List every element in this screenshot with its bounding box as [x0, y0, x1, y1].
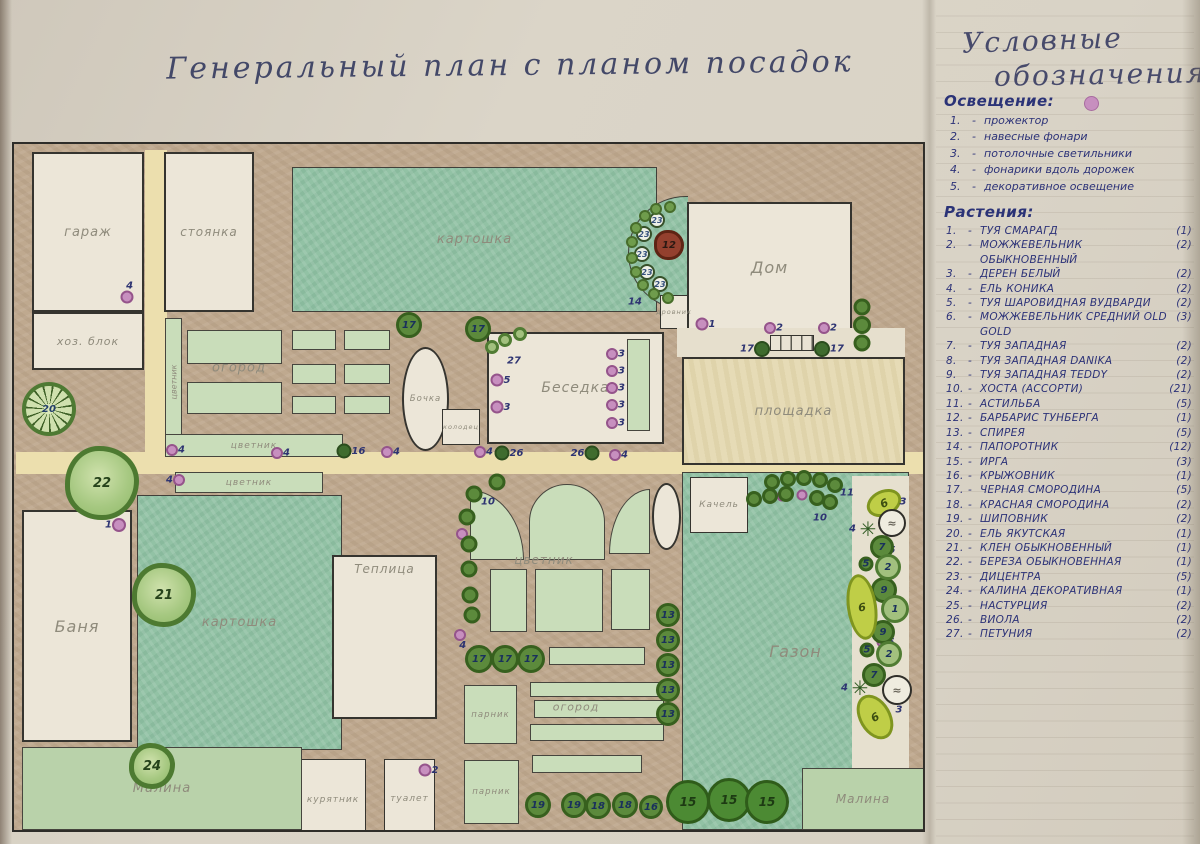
shrub	[778, 486, 794, 502]
fern-dot	[626, 236, 638, 248]
swing-label: Качель	[691, 478, 747, 532]
fern-dot	[662, 292, 674, 304]
plants-heading: Растения:	[944, 203, 1034, 221]
legend-row: 7.-ТУЯ ЗАПАДНАЯ(2)	[946, 339, 1192, 353]
fern-dot	[630, 266, 642, 278]
flowerbed-strip-2-label: цветник	[176, 473, 322, 492]
potato-field-top-label: картошка	[293, 168, 656, 311]
legend-num: 5.	[946, 296, 968, 310]
light-dot: 3	[606, 348, 618, 360]
legend-num: 17.	[946, 483, 968, 497]
garden-bed	[292, 396, 336, 414]
legend-panel: Условные обозначения Освещение: 1.-проже…	[936, 0, 1194, 844]
barberry-bush: 12	[654, 230, 684, 260]
light-dot: 2	[818, 322, 830, 334]
legend-name: ЕЛЬ ЯКУТСКАЯ	[980, 527, 1172, 541]
legend-name: ХОСТА (АССОРТИ)	[980, 382, 1165, 396]
flower-garden-bed	[490, 569, 527, 632]
legend-dash: -	[968, 469, 980, 483]
barrel-label: Бочка	[404, 349, 447, 449]
well-label: колодец	[443, 410, 479, 444]
garden-bed	[534, 700, 664, 718]
legend-name: навесные фонари	[984, 129, 1190, 145]
legend-dash: -	[968, 498, 980, 512]
hotbed-label: парник	[465, 686, 516, 743]
light-dot: 1	[696, 318, 709, 331]
legend-num: 4.	[946, 282, 968, 296]
legend-name: КЛЕН ОБЫКНОВЕННЫЙ	[980, 541, 1172, 555]
legend-row: 4.-фонарики вдоль дорожек	[950, 162, 1190, 178]
marker-number: 23	[654, 280, 665, 289]
legend-dash: -	[968, 613, 980, 627]
marker-number: 5	[863, 559, 870, 570]
shrub-dot: 26	[495, 446, 510, 461]
marker-number: 1	[105, 520, 112, 531]
shrub: 13	[656, 603, 680, 627]
shrub	[854, 299, 871, 316]
marker-number: 4	[283, 448, 290, 459]
marker-number: 18	[618, 800, 632, 811]
legend-name: ТУЯ ЗАПАДНАЯ DANIKA	[980, 354, 1172, 368]
legend-num: 22.	[946, 555, 968, 569]
garden-bed	[530, 682, 664, 697]
shrub: 2	[876, 641, 902, 667]
marker-number: 17	[471, 324, 485, 335]
legend-num: 3.	[950, 146, 972, 162]
legend-num: 14.	[946, 440, 968, 454]
legend-row: 27.-ПЕТУНИЯ(2)	[946, 627, 1192, 641]
shrub: 18	[612, 792, 638, 818]
greenhouse: Теплица	[332, 555, 437, 719]
spruce-conica-icon: ✳4	[850, 678, 870, 698]
legend-row: 24.-КАЛИНА ДЕКОРАТИВНАЯ(1)	[946, 584, 1192, 598]
legend-num: 1.	[946, 224, 968, 238]
legend-row: 18.-КРАСНАЯ СМОРОДИНА(2)	[946, 498, 1192, 512]
legend-row: 3.-потолочные светильники	[950, 146, 1190, 162]
legend-row: 25.-НАСТУРЦИЯ(2)	[946, 599, 1192, 613]
marker-number: 13	[661, 610, 675, 621]
legend-dash: -	[968, 627, 980, 641]
legend-name: ЕЛЬ КОНИКА	[980, 282, 1172, 296]
spruce-top-view: 20	[22, 382, 76, 436]
marker-number: 7	[879, 542, 886, 553]
legend-row: 20.-ЕЛЬ ЯКУТСКАЯ(1)	[946, 527, 1192, 541]
shrub	[466, 486, 483, 503]
shrub	[822, 494, 838, 510]
flower-garden-bed	[611, 569, 650, 630]
legend-row: 13.-СПИРЕЯ(5)	[946, 426, 1192, 440]
marker-number: 23	[636, 250, 647, 259]
legend-row: 12.-БАРБАРИС ТУНБЕРГА(1)	[946, 411, 1192, 425]
light-dot: 3	[606, 399, 618, 411]
bathhouse-label: Баня	[24, 512, 130, 740]
light-dot: 4	[474, 446, 486, 458]
legend-name: декоративное освещение	[984, 179, 1190, 195]
shrub: 19	[561, 792, 587, 818]
legend-name: МОЖЖЕВЕЛЬНИК ОБЫКНОВЕННЫЙ	[980, 238, 1172, 267]
shrub: 16	[639, 795, 663, 819]
garden-bed	[532, 755, 642, 773]
legend-name: ДИЦЕНТРА	[980, 570, 1172, 584]
fern-dot	[650, 203, 662, 215]
legend-dash: -	[968, 483, 980, 497]
legend-name: ДЕРЕН БЕЛЫЙ	[980, 267, 1172, 281]
light-dot: 4	[121, 291, 134, 304]
marker-number: 22	[93, 476, 111, 491]
shrub	[461, 536, 478, 553]
legend-num: 25.	[946, 599, 968, 613]
legend-row: 21.-КЛЕН ОБЫКНОВЕННЫЙ(1)	[946, 541, 1192, 555]
flower-garden-bed	[549, 647, 645, 665]
legend-num: 2.	[950, 129, 972, 145]
marker-number: 15	[759, 795, 776, 809]
flowerbed-strip-2: цветник	[175, 472, 323, 493]
shrub: 2	[875, 554, 901, 580]
marker-number: 7	[871, 670, 878, 681]
legend-num: 11.	[946, 397, 968, 411]
legend-dash: -	[968, 599, 980, 613]
marker-number: 17	[498, 654, 512, 665]
legend-name: ТУЯ ЗАПАДНАЯ TEDDY	[980, 368, 1172, 382]
house-label: Дом	[689, 204, 850, 330]
legend-dash: -	[968, 397, 980, 411]
marker-number: 2	[432, 765, 439, 776]
legend-name: ИРГА	[980, 455, 1172, 469]
light-dot: 4	[271, 447, 283, 459]
spruce-conica-icon: ✳4	[858, 519, 878, 539]
garden-bed	[187, 382, 282, 414]
legend-row: 26.-ВИОЛА(2)	[946, 613, 1192, 627]
legend-num: 12.	[946, 411, 968, 425]
greenhouse-label: Теплица	[334, 557, 435, 717]
light-dot: 1	[112, 518, 126, 532]
legend-dash: -	[968, 584, 980, 598]
legend-num: 7.	[946, 339, 968, 353]
utility-block-label: хоз. блок	[34, 314, 142, 368]
raspberry-right: Малина	[802, 768, 924, 830]
legend-dash: -	[968, 368, 980, 382]
marker-number: 18	[591, 801, 605, 812]
lighting-pink-dot-icon	[1084, 96, 1099, 111]
legend-row: 1.-прожектор	[950, 113, 1190, 129]
legend-row: 16.-КРЫЖОВНИК(1)	[946, 469, 1192, 483]
light-dot: 3	[606, 365, 618, 377]
marker-number: 5	[864, 645, 871, 656]
shrub	[498, 333, 512, 347]
gazebo-green-strip	[627, 339, 650, 431]
legend-dash: -	[968, 411, 980, 425]
shrub: 17	[396, 312, 422, 338]
marker-number: 2	[886, 649, 893, 660]
marker-number: 2	[885, 562, 892, 573]
legend-row: 15.-ИРГА(3)	[946, 455, 1192, 469]
marker-number: 19	[531, 800, 545, 811]
legend-num: 18.	[946, 498, 968, 512]
legend-name: БАРБАРИС ТУНБЕРГА	[980, 411, 1172, 425]
utility-block: хоз. блок	[32, 312, 144, 370]
shrub	[513, 327, 527, 341]
marker-number: 3	[618, 349, 625, 360]
marker-number: 17	[830, 344, 844, 355]
legend-num: 27.	[946, 627, 968, 641]
shrub: 13	[656, 628, 680, 652]
dogwood-shrub: ≈	[882, 675, 912, 705]
legend-dash: -	[968, 282, 980, 296]
lighting-list: 1.-прожектор2.-навесные фонари3.-потолоч…	[950, 113, 1190, 195]
legend-row: 11.-АСТИЛЬБА(5)	[946, 397, 1192, 411]
shrub-dot: 16	[337, 444, 352, 459]
garden-bed	[344, 330, 390, 350]
legend-dash: -	[968, 296, 980, 310]
legend-num: 19.	[946, 512, 968, 526]
legend-num: 23.	[946, 570, 968, 584]
marker-number: 6	[857, 600, 866, 614]
legend-row: 5.-ТУЯ ШАРОВИДНАЯ ВУДВАРДИ(2)	[946, 296, 1192, 310]
shrub-dot: 17	[814, 341, 830, 357]
legend-dash: -	[972, 179, 984, 195]
legend-dash: -	[968, 570, 980, 584]
legend-name: ШИПОВНИК	[980, 512, 1172, 526]
legend-name: АСТИЛЬБА	[980, 397, 1172, 411]
shrub	[464, 607, 481, 624]
hotbed-label: парник	[465, 761, 518, 823]
legend-num: 9.	[946, 368, 968, 382]
light-dot: 4	[609, 449, 621, 461]
garden-bed	[292, 330, 336, 350]
marker-number: 13	[661, 709, 675, 720]
marker-number: 13	[661, 685, 675, 696]
legend-num: 8.	[946, 354, 968, 368]
marker-number: 16	[352, 446, 366, 457]
plan: гаражхоз. блокстоянкакартошкаДомдровникп…	[12, 142, 925, 832]
legend-num: 15.	[946, 455, 968, 469]
legend-dash: -	[968, 455, 980, 469]
house: Дом	[687, 202, 852, 332]
legend-dash: -	[968, 354, 980, 368]
legend-dash: -	[972, 113, 984, 129]
light-dot: 2	[419, 764, 432, 777]
legend-row: 5.-декоративное освещение	[950, 179, 1190, 195]
marker-number: 9	[881, 585, 888, 596]
oval-bed	[652, 483, 681, 550]
marker-number: 4	[166, 475, 173, 486]
shrub	[459, 509, 476, 526]
marker-number: 15	[721, 793, 738, 807]
legend-dash: -	[968, 555, 980, 569]
fern-dot	[639, 210, 651, 222]
irga-shrub: 15	[666, 780, 710, 824]
legend-name: ВИОЛА	[980, 613, 1172, 627]
light-dot: 4	[454, 629, 466, 641]
marker-number: 17	[472, 654, 486, 665]
legend-num: 20.	[946, 527, 968, 541]
marker-number: 4	[126, 281, 133, 292]
shrub: 13	[656, 653, 680, 677]
marker-number: 5	[504, 375, 511, 386]
shrub	[746, 491, 762, 507]
marker-number: 12	[662, 240, 676, 251]
light-dot	[797, 490, 808, 501]
raspberry-right-label: Малина	[803, 769, 923, 829]
legend-name: МОЖЖЕВЕЛЬНИК СРЕДНИЙ OLD GOLD	[980, 310, 1172, 339]
hotbed: парник	[464, 760, 519, 824]
shrub-dot: 17	[754, 341, 770, 357]
light-dot: 4	[173, 474, 185, 486]
marker-number: 3	[504, 402, 511, 413]
garden-bed	[530, 724, 664, 741]
legend-name: ТУЯ ШАРОВИДНАЯ ВУДВАРДИ	[980, 296, 1172, 310]
legend-num: 21.	[946, 541, 968, 555]
legend-num: 24.	[946, 584, 968, 598]
shrub: 13	[656, 702, 680, 726]
marker-number: 1	[709, 319, 716, 330]
shrub: 17	[517, 645, 545, 673]
parking-label: стоянка	[166, 154, 252, 310]
marker-number: 6	[878, 495, 890, 510]
marker-number: 4	[841, 683, 848, 694]
legend-num: 16.	[946, 469, 968, 483]
potato-field-top: картошка	[292, 167, 657, 312]
legend-dash: -	[968, 512, 980, 526]
marker-number: 17	[740, 344, 754, 355]
legend-name: прожектор	[984, 113, 1190, 129]
legend-name: КРЫЖОВНИК	[980, 469, 1172, 483]
legend-row: 10.-ХОСТА (АССОРТИ)(21)	[946, 382, 1192, 396]
marker-number: 13	[661, 660, 675, 671]
legend-name: ПАПОРОТНИК	[980, 440, 1165, 454]
shrub	[461, 561, 478, 578]
marker-number: 9	[880, 627, 887, 638]
legend-row: 3.-ДЕРЕН БЕЛЫЙ(2)	[946, 267, 1192, 281]
light-dot: 4	[166, 444, 178, 456]
light-dot: 3	[606, 382, 618, 394]
legend-row: 8.-ТУЯ ЗАПАДНАЯ DANIKA(2)	[946, 354, 1192, 368]
shrub	[489, 474, 506, 491]
shrub: 17	[465, 316, 491, 342]
marker-number: 4	[849, 524, 856, 535]
chicken-coop: курятник	[300, 759, 366, 832]
legend-dash: -	[972, 129, 984, 145]
marker-number: 3	[618, 418, 625, 429]
marker-number: 2	[830, 323, 837, 334]
shrub: 5	[860, 643, 875, 658]
legend-num: 13.	[946, 426, 968, 440]
legend-dash: -	[968, 310, 980, 324]
paper-right-edge	[1182, 0, 1200, 844]
legend-row: 19.-ШИПОВНИК(2)	[946, 512, 1192, 526]
shrub	[780, 471, 796, 487]
marker-number: 4	[486, 447, 493, 458]
flowerbed-strip-bottom-label: цветник	[166, 435, 342, 456]
parking: стоянка	[164, 152, 254, 312]
light-dot: 3	[606, 417, 618, 429]
legend-num: 2.	[946, 238, 968, 252]
light-dot: 3	[491, 401, 504, 414]
shrub	[796, 470, 812, 486]
fern-dot	[664, 201, 676, 213]
shrub-dot: 26	[585, 446, 600, 461]
shrub: 17	[465, 645, 493, 673]
shrub	[812, 472, 828, 488]
flower-garden-bed	[609, 489, 650, 554]
hotbed: парник	[464, 685, 517, 744]
page-title: Генеральный план с планом посадок	[140, 44, 880, 87]
marker-number: 4	[393, 447, 400, 458]
lighting-heading: Освещение:	[944, 92, 1054, 110]
legend-row: 2.-навесные фонари	[950, 129, 1190, 145]
porch	[770, 335, 814, 351]
plants-list: 1.-ТУЯ СМАРАГД(1)2.-МОЖЖЕВЕЛЬНИК ОБЫКНОВ…	[946, 224, 1192, 642]
tree: 24	[129, 743, 175, 789]
shrub	[853, 316, 871, 334]
marker-number: 17	[524, 654, 538, 665]
marker-number: 2	[776, 323, 783, 334]
shrub	[462, 587, 479, 604]
legend-row: 9.-ТУЯ ЗАПАДНАЯ TEDDY(2)	[946, 368, 1192, 382]
legend-row: 6.-МОЖЖЕВЕЛЬНИК СРЕДНИЙ OLD GOLD(3)	[946, 310, 1192, 339]
tree: 22	[65, 446, 139, 520]
legend-name: СПИРЕЯ	[980, 426, 1172, 440]
legend-name: ТУЯ ЗАПАДНАЯ	[980, 339, 1172, 353]
garden-bed	[292, 364, 336, 384]
legend-row: 2.-МОЖЖЕВЕЛЬНИК ОБЫКНОВЕННЫЙ(2)	[946, 238, 1192, 267]
irga-shrub: 15	[745, 780, 789, 824]
legend-name: ЧЕРНАЯ СМОРОДИНА	[980, 483, 1172, 497]
legend-dash: -	[968, 238, 980, 252]
marker-number: 4	[459, 640, 466, 651]
marker-number: 3	[618, 400, 625, 411]
legend-num: 5.	[950, 179, 972, 195]
shrub	[762, 488, 778, 504]
marker-number: 3	[618, 366, 625, 377]
legend-dash: -	[968, 339, 980, 353]
legend-row: 22.-БЕРЕЗА ОБЫКНОВЕННАЯ(1)	[946, 555, 1192, 569]
light-dot: 2	[764, 322, 776, 334]
paper-crease	[922, 0, 936, 844]
legend-name: КАЛИНА ДЕКОРАТИВНАЯ	[980, 584, 1172, 598]
legend-num: 26.	[946, 613, 968, 627]
well: колодец	[442, 409, 480, 445]
shrub	[854, 335, 871, 352]
light-dot: 5	[491, 374, 504, 387]
marker-number: 15	[680, 795, 697, 809]
legend-row: 4.-ЕЛЬ КОНИКА(2)	[946, 282, 1192, 296]
photo-of-garden-plan: { "title": "Генеральный план с планом по…	[0, 0, 1200, 844]
tree: 21	[132, 563, 196, 627]
legend-dash: -	[968, 527, 980, 541]
flower-garden-bed	[529, 484, 605, 560]
legend-dash: -	[968, 426, 980, 440]
legend-num: 3.	[946, 267, 968, 281]
legend-row: 14.-ПАПОРОТНИК(12)	[946, 440, 1192, 454]
shrub: 17	[491, 645, 519, 673]
flower-garden-bed	[535, 569, 603, 632]
shrub: 5	[859, 557, 874, 572]
marker-number: 26	[571, 448, 585, 459]
legend-dash: -	[972, 146, 984, 162]
legend-name: НАСТУРЦИЯ	[980, 599, 1172, 613]
marker-number: 4	[621, 450, 628, 461]
legend-name: ПЕТУНИЯ	[980, 627, 1172, 641]
legend-dash: -	[968, 541, 980, 555]
marker-number: 24	[143, 759, 161, 774]
legend-name: ТУЯ СМАРАГД	[980, 224, 1172, 238]
fern-dot	[626, 252, 638, 264]
legend-dash: -	[972, 162, 984, 178]
legend-dash: -	[968, 382, 980, 396]
marker-number: 17	[402, 320, 416, 331]
fern-dot	[648, 288, 660, 300]
